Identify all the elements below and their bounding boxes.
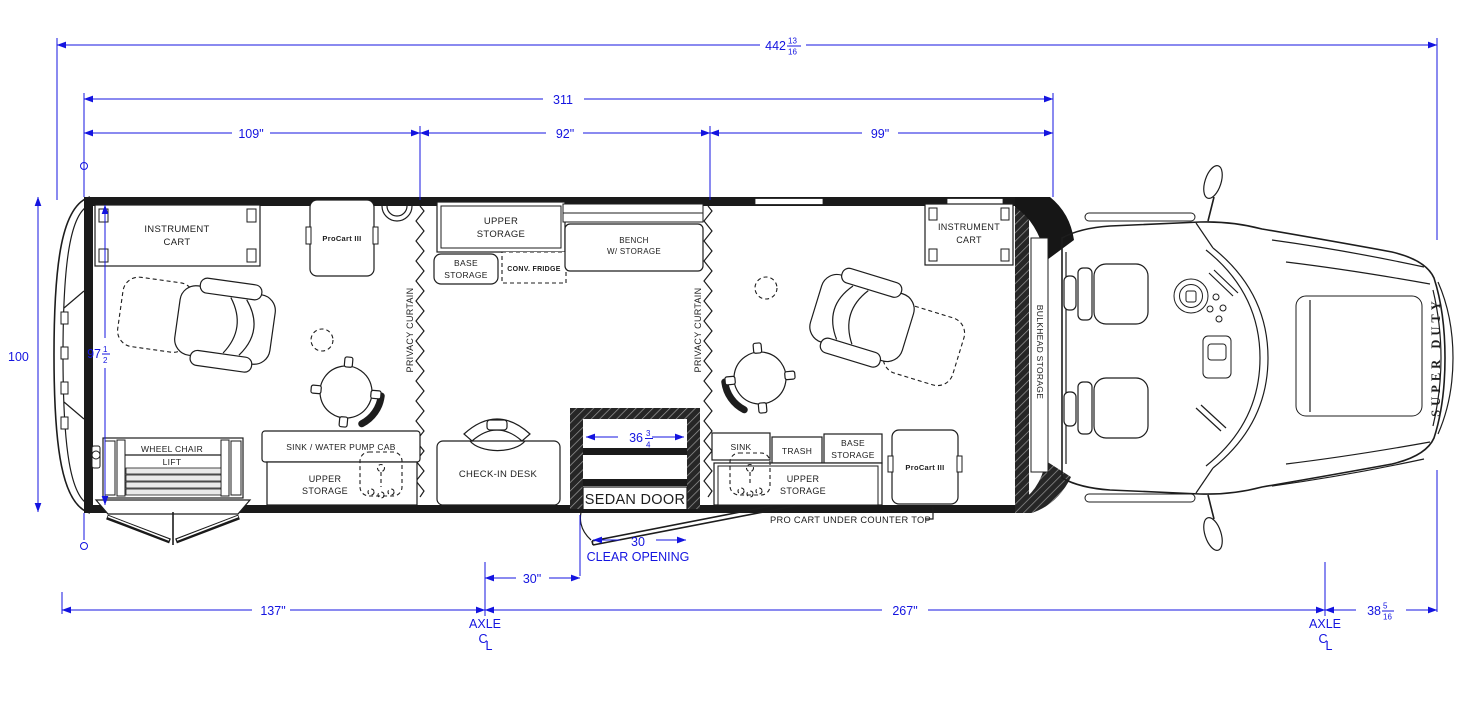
upper-storage-galley-label2: STORAGE xyxy=(477,229,525,240)
base-storage-galley: BASE STORAGE xyxy=(434,254,498,284)
exam-chair-rear-head xyxy=(311,329,333,351)
procart-note-text: PRO CART UNDER COUNTER TOP xyxy=(770,515,931,525)
wall-sink-bowl xyxy=(382,206,412,221)
sink-label: SINK xyxy=(730,442,751,452)
center-console xyxy=(1203,336,1231,378)
upper-storage-galley-label1: UPPER xyxy=(484,216,518,227)
conv-fridge-label: CONV. FRIDGE xyxy=(507,266,561,273)
dim-bay-mid: 92" xyxy=(420,127,710,141)
axle-centerline-left: AXLE C L xyxy=(469,617,501,653)
floorplan-page: BULKHEAD STORAGE INSTRUMENT CART ProCart… xyxy=(0,0,1459,701)
upper-storage-rear-label1: UPPER xyxy=(309,474,342,484)
svg-text:100: 100 xyxy=(8,350,29,364)
dim-sedan-door-width: 36 3 4 xyxy=(586,429,684,450)
bulkhead-storage-label: BULKHEAD STORAGE xyxy=(1035,305,1045,399)
dim-rear-overhang: 137" xyxy=(62,604,485,618)
svg-text:36: 36 xyxy=(629,431,643,445)
svg-text:CLEAR OPENING: CLEAR OPENING xyxy=(587,550,690,564)
wheelchair-lift: WHEEL CHAIR LIFT xyxy=(92,438,243,498)
svg-text:2: 2 xyxy=(103,356,108,365)
svg-text:AXLE: AXLE xyxy=(1309,617,1341,631)
dim-front-overhang: 38 5 16 xyxy=(1325,602,1437,622)
instrument-cart-front-label1: INSTRUMENT xyxy=(938,222,1000,232)
svg-text:38: 38 xyxy=(1367,604,1381,618)
svg-text:30: 30 xyxy=(631,535,645,549)
wheelchair-lift-doors xyxy=(96,500,250,545)
base-storage-galley-label2: STORAGE xyxy=(444,270,488,280)
privacy-curtain-left-label: PRIVACY CURTAIN xyxy=(405,288,415,373)
svg-text:99": 99" xyxy=(871,127,889,141)
doctor-stool-front xyxy=(720,338,801,419)
bench-label2: W/ STORAGE xyxy=(607,247,661,256)
a-pillar-top xyxy=(1196,223,1213,248)
svg-text:5: 5 xyxy=(1383,602,1388,611)
upper-storage-rear-label2: STORAGE xyxy=(302,486,348,496)
svg-text:L: L xyxy=(486,639,493,653)
dim-box-length: 311 xyxy=(84,93,1053,107)
wheelchair-lift-label2: LIFT xyxy=(163,457,182,467)
procart-rear: ProCart III xyxy=(306,200,378,276)
dim-overall-length: 442 13 16 xyxy=(57,37,1437,57)
window-slot xyxy=(755,199,823,205)
bulkhead-storage-cabinet: BULKHEAD STORAGE xyxy=(1031,238,1048,472)
svg-text:92": 92" xyxy=(556,127,574,141)
svg-text:97: 97 xyxy=(87,347,101,361)
bench-label1: BENCH xyxy=(619,236,649,245)
passenger-seat xyxy=(1064,378,1148,438)
procart-front: ProCart III xyxy=(888,430,962,504)
side-mirror-bottom xyxy=(1200,495,1226,553)
floorplan-canvas: BULKHEAD STORAGE INSTRUMENT CART ProCart… xyxy=(0,0,1459,701)
steering-wheel xyxy=(1174,279,1208,313)
svg-text:13: 13 xyxy=(788,37,797,46)
hood-bulge xyxy=(1296,296,1422,416)
running-board-bottom xyxy=(1085,494,1195,502)
sedan-door-label: SEDAN DOOR xyxy=(585,492,686,508)
sink-water-pump-cab: SINK / WATER PUMP CAB xyxy=(262,431,420,462)
axle-centerline-right: AXLE C L xyxy=(1309,617,1341,653)
svg-text:109": 109" xyxy=(238,127,263,141)
driver-seat xyxy=(1064,264,1148,324)
dim-wheelbase: 267" xyxy=(485,604,1325,618)
base-storage-front: BASE STORAGE xyxy=(824,434,882,463)
instrument-cart-front: INSTRUMENT CART xyxy=(925,204,1013,265)
wheelchair-lift-label1: WHEEL CHAIR xyxy=(141,444,203,454)
svg-text:137": 137" xyxy=(260,604,285,618)
sink-water-pump-label: SINK / WATER PUMP CAB xyxy=(286,442,396,452)
svg-text:L: L xyxy=(1326,639,1333,653)
sink-cabinet-front: SINK xyxy=(712,433,770,460)
running-board-top xyxy=(1085,213,1195,221)
bench-with-storage: BENCH W/ STORAGE xyxy=(563,204,703,271)
base-storage-galley-label1: BASE xyxy=(454,258,478,268)
procart-rear-label: ProCart III xyxy=(322,234,361,243)
doctor-stool-rear xyxy=(306,352,387,433)
dim-overall-width: 100 xyxy=(8,197,38,512)
a-pillar-bottom xyxy=(1196,468,1213,493)
svg-text:311: 311 xyxy=(553,93,573,107)
svg-text:1: 1 xyxy=(103,345,108,354)
svg-text:16: 16 xyxy=(788,48,797,57)
exam-chair-front-head xyxy=(755,277,777,299)
upper-storage-front-label2: STORAGE xyxy=(780,486,826,496)
svg-text:AXLE: AXLE xyxy=(469,617,501,631)
trash-label: TRASH xyxy=(782,446,812,456)
dim-bay-front: 99" xyxy=(710,127,1053,141)
wall-bottom-right xyxy=(700,505,1015,513)
base-storage-front-label2: STORAGE xyxy=(831,450,875,460)
conv-fridge: CONV. FRIDGE xyxy=(502,252,566,283)
svg-text:16: 16 xyxy=(1383,613,1392,622)
instrument-cart-rear: INSTRUMENT CART xyxy=(95,205,260,266)
svg-text:3: 3 xyxy=(646,429,651,438)
dim-bay-rear: 109" xyxy=(84,127,420,141)
checkin-desk-label: CHECK-IN DESK xyxy=(459,469,538,480)
upper-storage-front-label1: UPPER xyxy=(787,474,820,484)
procart-front-label: ProCart III xyxy=(905,463,944,472)
svg-text:267": 267" xyxy=(892,604,917,618)
instrument-cart-front-label2: CART xyxy=(956,235,982,245)
svg-text:4: 4 xyxy=(646,441,651,450)
side-mirror-top xyxy=(1200,163,1226,221)
base-storage-front-label1: BASE xyxy=(841,438,865,448)
instrument-cart-rear-label1: INSTRUMENT xyxy=(144,224,209,235)
exam-chair-front xyxy=(755,262,969,390)
exam-chair-rear xyxy=(115,275,333,376)
trash-cabinet: TRASH xyxy=(772,437,822,463)
dash-controls xyxy=(1207,294,1226,322)
svg-text:442: 442 xyxy=(765,39,786,53)
svg-text:30": 30" xyxy=(523,572,541,586)
truck-cab: SUPER DUTY xyxy=(1062,163,1453,552)
instrument-cart-rear-label2: CART xyxy=(164,237,191,248)
super-duty-badge: SUPER DUTY xyxy=(1429,297,1443,417)
upper-storage-galley: UPPER STORAGE xyxy=(437,202,565,252)
dim-door-to-axle: 30" xyxy=(485,572,580,586)
privacy-curtain-right-label: PRIVACY CURTAIN xyxy=(693,288,703,373)
